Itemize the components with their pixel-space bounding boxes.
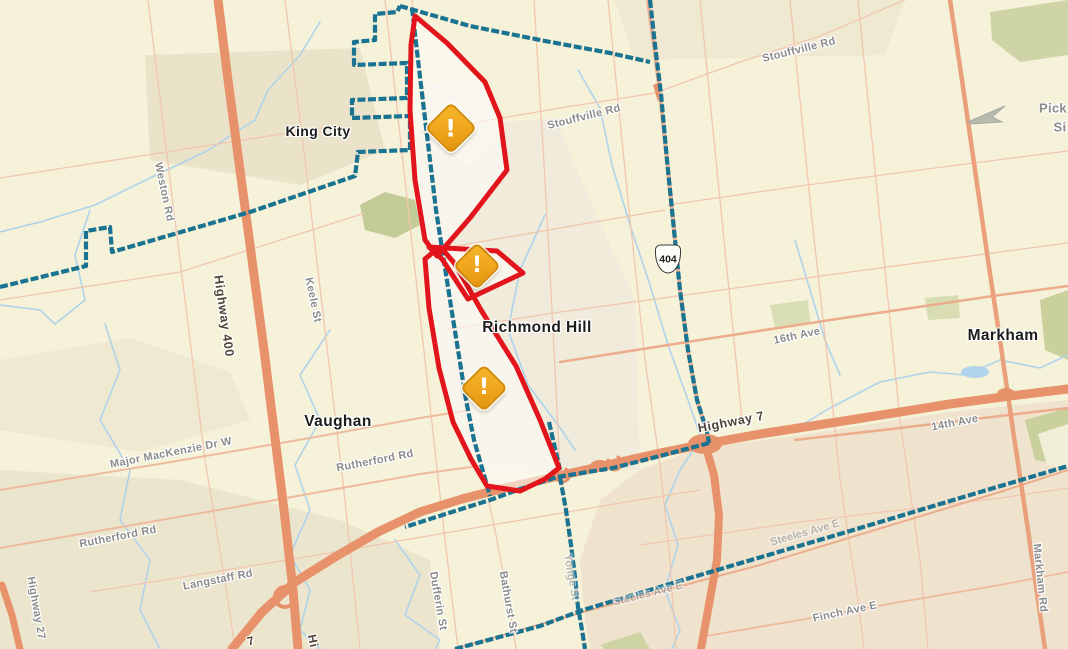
map-canvas[interactable]: 404 !!! King CityRichmond HillVaughanMar…: [0, 0, 1068, 649]
exclamation-icon: !: [479, 377, 489, 399]
exclamation-icon: !: [472, 255, 482, 277]
exclamation-icon: !: [446, 116, 457, 140]
map-artwork: [0, 0, 1068, 649]
